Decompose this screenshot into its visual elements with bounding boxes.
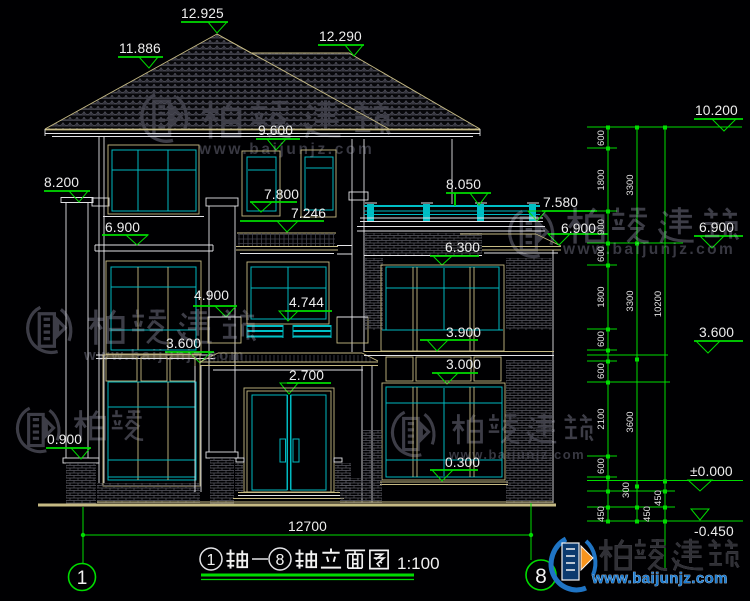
- svg-text:8: 8: [276, 552, 285, 569]
- svg-text:4.900: 4.900: [194, 288, 229, 303]
- svg-text:www.baijunjz.com: www.baijunjz.com: [448, 447, 585, 462]
- svg-text:1800: 1800: [596, 169, 607, 190]
- svg-text:6.300: 6.300: [445, 240, 480, 255]
- svg-text:3600: 3600: [625, 411, 636, 432]
- svg-text:2100: 2100: [596, 408, 607, 429]
- svg-text:12.290: 12.290: [319, 29, 362, 44]
- svg-text:1800: 1800: [596, 286, 607, 307]
- svg-text:450: 450: [596, 506, 607, 522]
- svg-text:7.246: 7.246: [291, 206, 326, 221]
- svg-text:300: 300: [621, 482, 632, 498]
- svg-text:8: 8: [535, 565, 547, 588]
- svg-text:450: 450: [653, 490, 664, 506]
- svg-text:www.baijunjz.com: www.baijunjz.com: [591, 570, 728, 587]
- svg-text:7.800: 7.800: [264, 187, 299, 202]
- svg-text:www.baijunjz.com: www.baijunjz.com: [198, 141, 374, 158]
- svg-text:600: 600: [596, 363, 607, 379]
- svg-text:6.900: 6.900: [105, 220, 140, 235]
- svg-text:10.200: 10.200: [695, 103, 738, 118]
- svg-text:1: 1: [77, 568, 88, 589]
- svg-text:3.000: 3.000: [446, 357, 481, 372]
- svg-text:8.200: 8.200: [44, 175, 79, 190]
- svg-text:600: 600: [596, 130, 607, 146]
- svg-text:12700: 12700: [288, 519, 327, 534]
- svg-text:-0.450: -0.450: [694, 524, 734, 539]
- svg-text:2.700: 2.700: [289, 368, 324, 383]
- svg-text:3.900: 3.900: [446, 325, 481, 340]
- svg-text:7.580: 7.580: [543, 195, 578, 210]
- svg-text:±0.000: ±0.000: [690, 464, 733, 479]
- svg-text:11.886: 11.886: [119, 41, 161, 56]
- svg-text:4.744: 4.744: [289, 295, 324, 310]
- svg-text:0.900: 0.900: [47, 432, 82, 447]
- svg-text:600: 600: [596, 458, 607, 474]
- svg-text:10200: 10200: [653, 291, 664, 317]
- svg-text:3300: 3300: [625, 290, 636, 311]
- svg-text:1: 1: [207, 552, 216, 569]
- svg-text:www.baijunjz.com: www.baijunjz.com: [562, 241, 735, 258]
- svg-text:12.925: 12.925: [181, 6, 224, 21]
- svg-text:www.baijunjz.com: www.baijunjz.com: [83, 347, 245, 364]
- svg-text:3300: 3300: [625, 174, 636, 195]
- svg-text:600: 600: [596, 331, 607, 347]
- svg-text:8.050: 8.050: [446, 177, 481, 192]
- svg-text:450: 450: [642, 506, 653, 522]
- svg-text:3.600: 3.600: [699, 325, 734, 340]
- svg-text:1:100: 1:100: [397, 554, 440, 573]
